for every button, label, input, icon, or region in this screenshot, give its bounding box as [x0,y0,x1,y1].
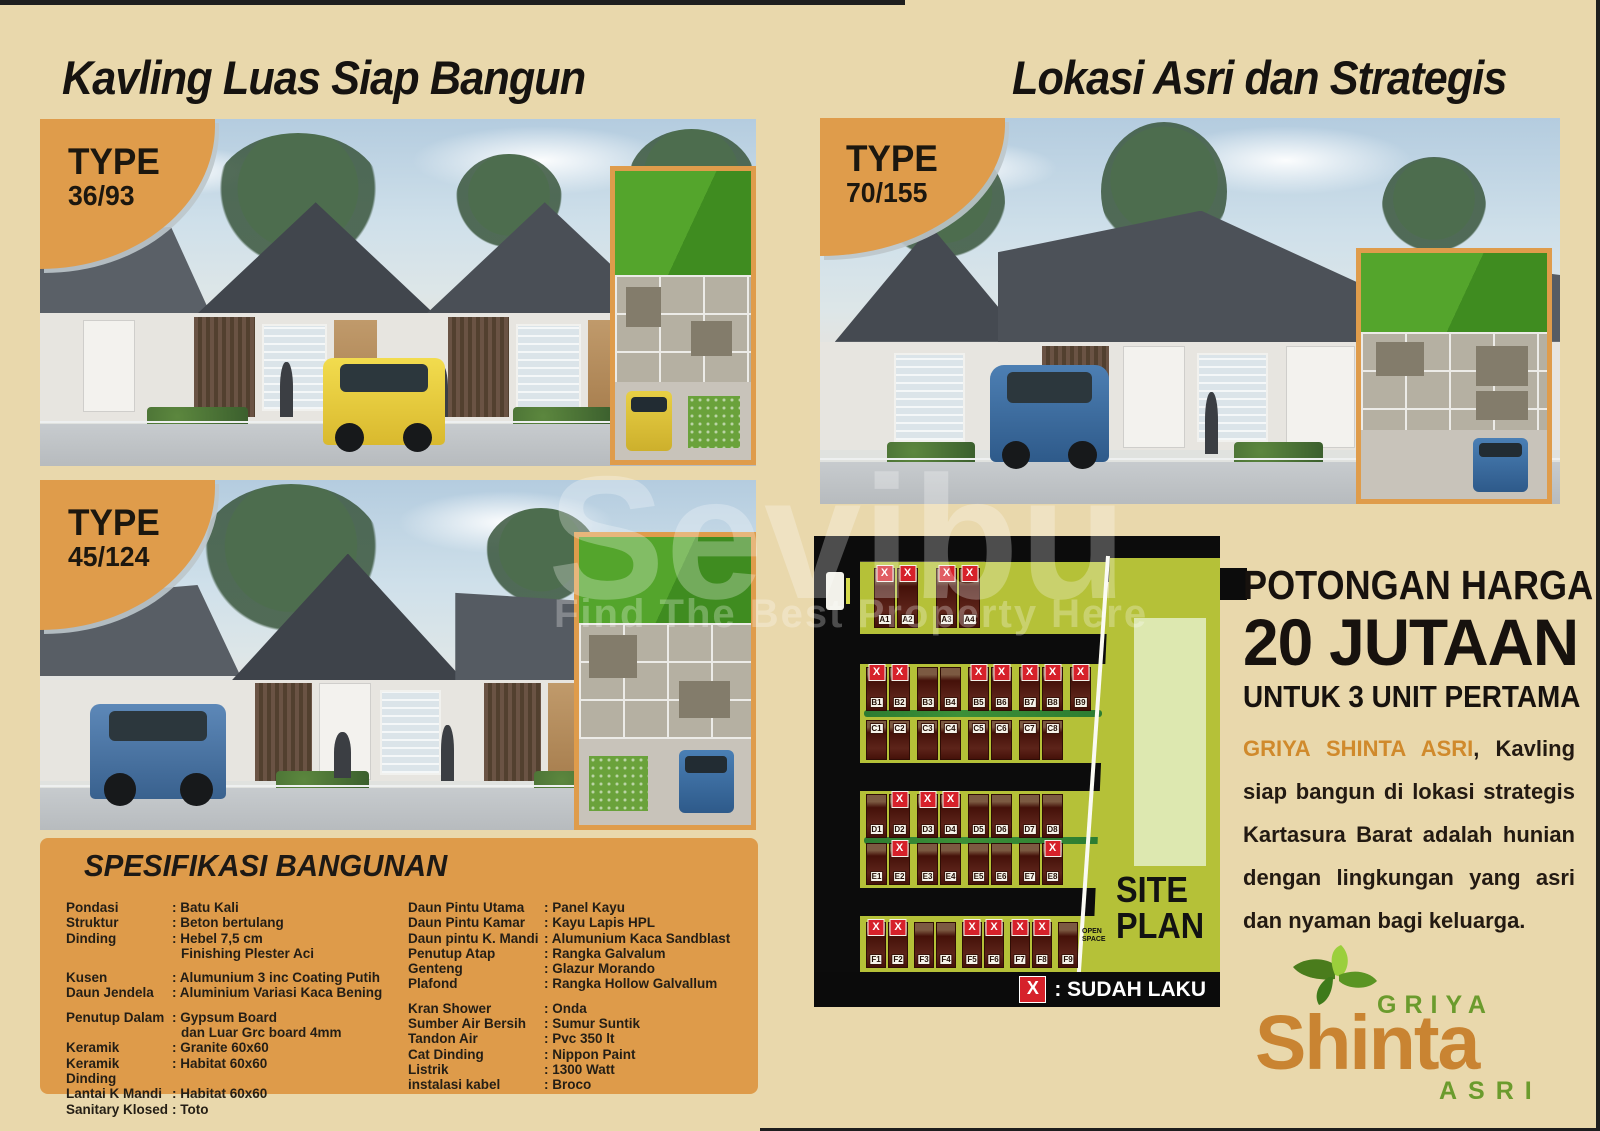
spec-value: : Alumunium 3 inc Coating Putih [172,970,400,985]
sold-x-icon: X [868,919,885,936]
spec-row-continued: dan Luar Grc board 4mm [66,1025,400,1040]
person-silhouette [280,362,293,418]
scan-edge-right [1596,0,1600,1131]
lot-label: C8 [1045,723,1059,734]
lot-E6: E6 [991,843,1012,885]
window [262,324,327,411]
site-plan: SITE PLAN XA1XA2XA3XA4 XB1XB2B3B4XB5XB6X… [800,510,1220,1010]
sold-x-icon: X [891,791,908,808]
lot-row-d: D1XD2XD3XD4D5D6D7D8 [866,794,1065,838]
spec-value: : Alumunium Kaca Sandblast [544,931,752,946]
lot-row-b: XB1XB2B3B4XB5XB6XB7XB8XB9 [866,667,1093,711]
type-value: 70/155 [846,178,997,208]
spec-label: Penutup Dalam [66,1010,172,1025]
render-type-36-93: TYPE 36/93 [40,119,756,466]
spec-value: dan Luar Grc board 4mm [172,1025,400,1040]
blue-car-illustration [90,704,226,799]
lot-D2: XD2 [889,794,910,838]
spec-row: Sanitary Klosed: Toto [66,1102,400,1117]
sold-x-icon: X [1044,664,1061,681]
lot-label: B8 [1045,697,1059,708]
lot-D5: D5 [968,794,989,838]
spec-row: Listrik: 1300 Watt [408,1062,752,1077]
lot-D8: D8 [1042,794,1063,838]
floorplan-furniture [1376,342,1424,376]
spec-row: Penutup Dalam: Gypsum Board [66,1010,400,1025]
sold-x-icon: X [1019,976,1046,1003]
spec-value: : Sumur Suntik [544,1016,752,1031]
lot-label: E5 [972,871,986,882]
lot-label: D6 [994,824,1008,835]
lot-label: F3 [917,954,930,965]
spec-value: Finishing Plester Aci [172,946,400,961]
spec-row: Pondasi: Batu Kali [66,900,400,915]
lot-label: E1 [870,871,884,882]
lot-D6: D6 [991,794,1012,838]
lot-label: E6 [995,871,1009,882]
lot-A1: XA1 [874,568,895,628]
garage-door [1286,346,1355,448]
type-label: TYPE [68,504,208,542]
road-3 [814,888,1108,916]
sold-x-icon: X [890,919,907,936]
spec-row: Tandon Air: Pvc 350 lt [408,1031,752,1046]
blue-car-illustration [990,365,1108,462]
lot-label: E2 [893,871,907,882]
spec-value: : Granite 60x60 [172,1040,400,1055]
floorplan-furniture [1476,346,1528,385]
spec-title: SPESIFIKASI BANGUNAN [84,848,447,884]
lot-A3: XA3 [936,568,957,628]
lot-label: F9 [1061,954,1074,965]
lot-B5: XB5 [968,667,989,711]
lot-label: D3 [920,824,934,835]
sold-x-icon: X [942,791,959,808]
floorplan-garden [579,537,751,623]
promo-block: POTONGAN HARGA 20 JUTAAN UNTUK 3 UNIT PE… [1243,564,1588,714]
sold-x-icon: X [1012,919,1029,936]
lot-F7: XF7 [1010,922,1030,968]
spec-row: Genteng: Glazur Morando [408,961,752,976]
spec-row: Struktur: Beton bertulang [66,915,400,930]
promo-description-highlight: GRIYA SHINTA ASRI [1243,736,1473,761]
lot-C8: C8 [1042,720,1063,760]
spec-label: Kran Shower [408,1001,544,1016]
lot-label: D2 [892,824,906,835]
spec-row: Kusen: Alumunium 3 inc Coating Putih [66,970,400,985]
promo-line3: UNTUK 3 UNIT PERTAMA [1243,680,1554,714]
promo-description: GRIYA SHINTA ASRI, Kavling siap bangun d… [1243,727,1575,942]
spec-value: : Kayu Lapis HPL [544,915,752,930]
spec-row-continued: Finishing Plester Aci [66,946,400,961]
spec-value: : Broco [544,1077,752,1092]
lot-E2: XE2 [889,843,910,885]
motorbike-silhouette [334,732,351,778]
lot-label: B1 [869,697,883,708]
lot-B1: XB1 [866,667,887,711]
lot-A4: XA4 [959,568,980,628]
spec-label: Penutup Atap [408,946,544,961]
spec-value: : Toto [172,1102,400,1117]
lot-label: E7 [1023,871,1037,882]
lot-E4: E4 [940,843,961,885]
window [380,690,441,775]
sold-x-icon: X [1021,664,1038,681]
lot-label: A3 [939,614,953,625]
spec-label [66,946,172,961]
lot-C4: C4 [940,720,961,760]
sold-x-icon: X [919,791,936,808]
headline-right: Lokasi Asri dan Strategis [1012,50,1506,105]
spec-row: Plafond: Rangka Hollow Galvallum [408,976,752,991]
floorplan-inset-36-93 [610,166,756,465]
lot-F6: XF6 [984,922,1004,968]
lot-label: C3 [920,723,934,734]
lot-label: C1 [869,723,883,734]
spec-value: : Batu Kali [172,900,400,915]
spec-label: instalasi kabel [408,1077,544,1092]
spec-value: : Habitat 60x60 [172,1086,400,1101]
logo-word-asri: ASRI [1439,1077,1543,1106]
spec-label: Daun Pintu Kamar [408,915,544,930]
spec-row: Kran Shower: Onda [408,1001,752,1016]
spec-value: : Hebel 7,5 cm [172,931,400,946]
type-value: 45/124 [68,542,208,572]
floorplan-inset-70-155 [1356,248,1552,504]
lot-B9: XB9 [1070,667,1091,711]
sold-x-icon: X [891,664,908,681]
lot-D7: D7 [1019,794,1040,838]
lot-row-f: XF1XF2F3F4XF5XF6XF7XF8F9 [866,922,1080,968]
lot-label: C4 [943,723,957,734]
lot-C1: C1 [866,720,887,760]
lot-E1: E1 [866,843,887,885]
lot-C7: C7 [1019,720,1040,760]
spec-value: : Glazur Morando [544,961,752,976]
site-plan-title-line2: PLAN [1116,908,1204,944]
site-plan-panel: SITE PLAN [1092,558,1220,972]
spec-value: : Habitat 60x60 [172,1056,400,1087]
promo-line2: 20 JUTAAN [1243,609,1578,676]
lot-C6: C6 [991,720,1012,760]
floorplan-car [679,750,734,813]
entrance-gate [826,572,844,610]
floorplan-furniture [589,635,637,678]
spec-label: Sumber Air Bersih [408,1016,544,1031]
door [1123,346,1184,448]
spec-box: SPESIFIKASI BANGUNAN Pondasi: Batu KaliS… [40,838,758,1094]
type-value: 36/93 [68,181,208,211]
legend-text: : SUDAH LAKU [1054,978,1206,1002]
spec-row: instalasi kabel: Broco [408,1077,752,1092]
promo-line1: POTONGAN HARGA [1243,564,1547,607]
sold-x-icon: X [970,664,987,681]
window [516,324,581,411]
slat-wall [448,317,509,418]
spec-label: Lantai K Mandi [66,1086,172,1101]
lot-C2: C2 [889,720,910,760]
lot-label: F8 [1035,954,1048,965]
lot-F8: XF8 [1032,922,1052,968]
site-plan-title-line1: SITE [1116,872,1204,908]
lot-F5: XF5 [962,922,982,968]
spec-row: Daun Pintu Utama: Panel Kayu [408,900,752,915]
tree-illustration [1382,157,1486,257]
spec-value: : Beton bertulang [172,915,400,930]
spec-label: Keramik Dinding [66,1056,172,1087]
sold-x-icon: X [1044,840,1061,857]
spec-label: Pondasi [66,900,172,915]
brand-logo: GRIYA Shinta ASRI [1255,945,1555,1115]
spec-label: Dinding [66,931,172,946]
spec-label: Daun Pintu Utama [408,900,544,915]
open-area [1134,618,1206,866]
hedge [864,710,1102,717]
spec-label: Daun Jendela [66,985,172,1000]
spec-value: : Rangka Hollow Galvallum [544,976,752,991]
lot-row-a: XA1XA2XA3XA4 [874,568,982,628]
floorplan-car [626,391,672,452]
type-label: TYPE [68,143,208,181]
lot-label: E4 [944,871,958,882]
lot-F4: F4 [936,922,956,968]
lot-label: F2 [891,954,904,965]
lot-label: D1 [869,824,883,835]
spec-row: Keramik Dinding: Habitat 60x60 [66,1056,400,1087]
spec-value: : Panel Kayu [544,900,752,915]
lot-label: F7 [1013,954,1026,965]
lot-label: F1 [869,954,882,965]
lot-B2: XB2 [889,667,910,711]
lot-label: B2 [892,697,906,708]
spec-row: Daun Pintu Kamar: Kayu Lapis HPL [408,915,752,930]
floorplan-car [1473,438,1529,492]
logo-word-shinta: Shinta [1255,999,1478,1088]
spec-label: Daun pintu K. Mandi [408,931,544,946]
floorplan-garden [615,171,751,275]
lot-row-e: E1XE2E3E4E5E6E7XE8 [866,843,1065,885]
floorplan-furniture [691,321,732,356]
floorplan-furniture [626,287,661,327]
floorplan-garden [1361,253,1547,332]
lot-label: F5 [965,954,978,965]
lot-label: B6 [994,697,1008,708]
roof-shape [998,211,1368,350]
floorplan-inset-45-124 [574,532,756,830]
spec-label: Kusen [66,970,172,985]
spec-value: : Rangka Galvalum [544,946,752,961]
sold-x-icon: X [993,664,1010,681]
lot-F2: XF2 [888,922,908,968]
brochure-canvas: Kavling Luas Siap Bangun Lokasi Asri dan… [0,0,1600,1131]
sold-x-icon: X [961,565,978,582]
spec-row: Dinding: Hebel 7,5 cm [66,931,400,946]
lot-label: A2 [900,614,914,625]
lot-B7: XB7 [1019,667,1040,711]
lot-F3: F3 [914,922,934,968]
floorplan-lawn [688,396,740,448]
slat-wall [255,683,312,781]
scan-edge-top [0,0,905,5]
car-windshield [109,711,207,741]
type-label: TYPE [846,140,997,178]
sold-x-icon: X [891,840,908,857]
slat-wall [484,683,541,781]
spec-value: : 1300 Watt [544,1062,752,1077]
spec-value: : Pvc 350 lt [544,1031,752,1046]
lot-label: B3 [920,697,934,708]
spec-column-left: Pondasi: Batu KaliStruktur: Beton bertul… [66,900,400,1117]
lot-E7: E7 [1019,843,1040,885]
lot-label: F6 [987,954,1000,965]
lot-label: D5 [971,824,985,835]
lot-E3: E3 [917,843,938,885]
sold-x-icon: X [1072,664,1089,681]
lot-label: D4 [943,824,957,835]
spec-value: : Onda [544,1001,752,1016]
lot-label: B4 [943,697,957,708]
car-windshield [1007,372,1092,403]
lot-D4: XD4 [940,794,961,838]
window [894,353,965,442]
spec-label: Struktur [66,915,172,930]
type-badge-36-93: TYPE 36/93 [40,119,215,269]
lot-B6: XB6 [991,667,1012,711]
render-type-45-124: TYPE 45/124 [40,480,756,830]
spec-label: Listrik [408,1062,544,1077]
lot-B8: XB8 [1042,667,1063,711]
spec-value: : Aluminium Variasi Kaca Bening [172,985,400,1000]
lot-label: A4 [962,614,976,625]
floorplan-lawn [589,756,647,811]
spec-label: Plafond [408,976,544,991]
lot-D1: D1 [866,794,887,838]
spec-row: Penutup Atap: Rangka Galvalum [408,946,752,961]
lot-D3: XD3 [917,794,938,838]
render-type-70-155: TYPE 70/155 [820,118,1560,504]
spec-label: Keramik [66,1040,172,1055]
spec-row: Daun pintu K. Mandi: Alumunium Kaca Sand… [408,931,752,946]
floorplan-furniture [679,681,731,718]
promo-description-rest: , Kavling siap bangun di lokasi strategi… [1243,736,1575,933]
lot-label: D8 [1045,824,1059,835]
spec-label: Tandon Air [408,1031,544,1046]
lot-label: B9 [1073,697,1087,708]
sold-x-icon: X [899,565,916,582]
spec-column-right: Daun Pintu Utama: Panel KayuDaun Pintu K… [408,900,752,1093]
spec-row: Cat Dinding: Nippon Paint [408,1047,752,1062]
lot-C5: C5 [968,720,989,760]
sold-x-icon: X [876,565,893,582]
lot-B3: B3 [917,667,938,711]
spec-value: : Nippon Paint [544,1047,752,1062]
lot-label: F4 [939,954,952,965]
car-windshield [340,364,428,392]
lot-label: B5 [971,697,985,708]
lot-B4: B4 [940,667,961,711]
spec-value: : Gypsum Board [172,1010,400,1025]
slat-wall [194,317,255,418]
site-plan-title: SITE PLAN [1116,872,1204,944]
lot-E5: E5 [968,843,989,885]
lot-A2: XA2 [897,568,918,628]
lot-label: A1 [877,614,891,625]
lot-row-c: C1C2C3C4C5C6C7C8 [866,720,1065,760]
lot-C3: C3 [917,720,938,760]
sold-x-icon: X [986,919,1003,936]
lot-label: B7 [1022,697,1036,708]
headline-left: Kavling Luas Siap Bangun [62,50,585,105]
lot-label: C7 [1022,723,1036,734]
spec-label: Cat Dinding [408,1047,544,1062]
spec-row: Daun Jendela: Aluminium Variasi Kaca Ben… [66,985,400,1000]
spec-row: Sumber Air Bersih: Sumur Suntik [408,1016,752,1031]
lot-label: C5 [971,723,985,734]
lot-E8: XE8 [1042,843,1063,885]
lot-F9: F9 [1058,922,1078,968]
lot-F1: XF1 [866,922,886,968]
sold-x-icon: X [1034,919,1051,936]
spec-label [66,1025,172,1040]
spec-label: Genteng [408,961,544,976]
legend-bar: X : SUDAH LAKU [814,972,1220,1007]
lot-label: E8 [1046,871,1060,882]
lot-label: E3 [921,871,935,882]
floorplan-furniture [1476,391,1528,421]
lot-label: C2 [892,723,906,734]
road-1 [814,634,1108,664]
yellow-car-illustration [323,358,445,445]
spec-row: Keramik: Granite 60x60 [66,1040,400,1055]
lot-label: C6 [994,723,1008,734]
sold-x-icon: X [868,664,885,681]
open-space-label: OPEN SPACE [1082,928,1116,944]
cyclist-silhouette [1205,392,1218,454]
sold-x-icon: X [938,565,955,582]
door [83,320,135,412]
spec-row: Lantai K Mandi: Habitat 60x60 [66,1086,400,1101]
road-2 [814,763,1108,791]
lot-label: D7 [1022,824,1036,835]
sold-x-icon: X [964,919,981,936]
spec-label: Sanitary Klosed [66,1102,172,1117]
person-silhouette [441,725,454,781]
